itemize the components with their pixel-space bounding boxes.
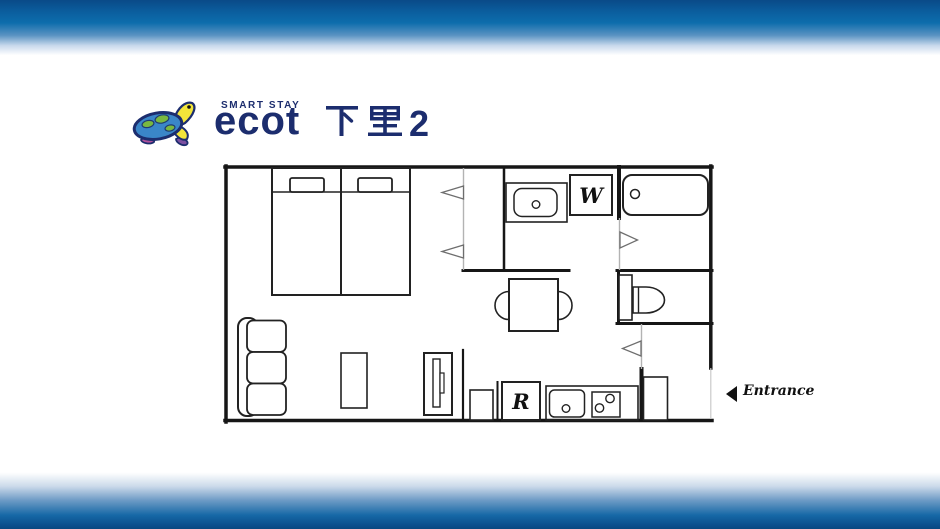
sofa-cushion <box>247 384 286 416</box>
tv-screen <box>433 359 440 407</box>
burner <box>595 404 603 412</box>
washbasin <box>506 183 567 222</box>
refrigerator: R <box>502 382 540 420</box>
kanji-sato <box>368 106 402 136</box>
sofa-cushion <box>247 352 286 384</box>
door-lines <box>464 168 642 369</box>
bottom-gradient-band <box>0 460 940 529</box>
pillow <box>290 178 324 192</box>
closet-door-swing-icon <box>442 245 464 258</box>
kitchen-sink <box>550 390 585 417</box>
pillow <box>358 178 392 192</box>
tv-stand <box>424 353 452 415</box>
burner <box>606 394 614 402</box>
top-gradient-band <box>0 0 940 57</box>
entrance-label: Entrance <box>743 383 814 399</box>
refrigerator-label: R <box>511 389 529 414</box>
sofa <box>238 318 286 416</box>
bathtub <box>623 175 708 215</box>
logo-brand: ecot <box>214 101 300 141</box>
property-name-kanji: 2 <box>326 104 431 138</box>
dining-table <box>509 279 558 331</box>
ecot-turtle-logo-icon <box>132 99 210 147</box>
kanji-shimo <box>326 106 358 136</box>
dining-set <box>495 279 572 331</box>
twin-beds <box>272 168 410 295</box>
floorplan: W <box>222 163 717 426</box>
chair <box>558 292 572 320</box>
toilet-door-swing-icon <box>623 341 642 356</box>
bath-door-swing-icon <box>620 232 638 248</box>
closet-door-swing-icon <box>442 186 464 199</box>
genkan-step <box>644 377 668 420</box>
turtle-shell-icon <box>132 109 184 143</box>
page: SMART STAY ecot 2 <box>0 0 940 529</box>
kitchen-counter <box>546 386 638 420</box>
toilet <box>619 275 665 320</box>
chair <box>495 292 509 320</box>
property-number: 2 <box>409 104 429 138</box>
sofa-cushion <box>247 321 286 353</box>
kitchen-shelf <box>470 390 493 420</box>
entrance-arrow-icon <box>726 386 737 402</box>
washing-machine: W <box>570 175 612 215</box>
side-table <box>341 353 367 408</box>
washer-label: W <box>579 183 605 208</box>
